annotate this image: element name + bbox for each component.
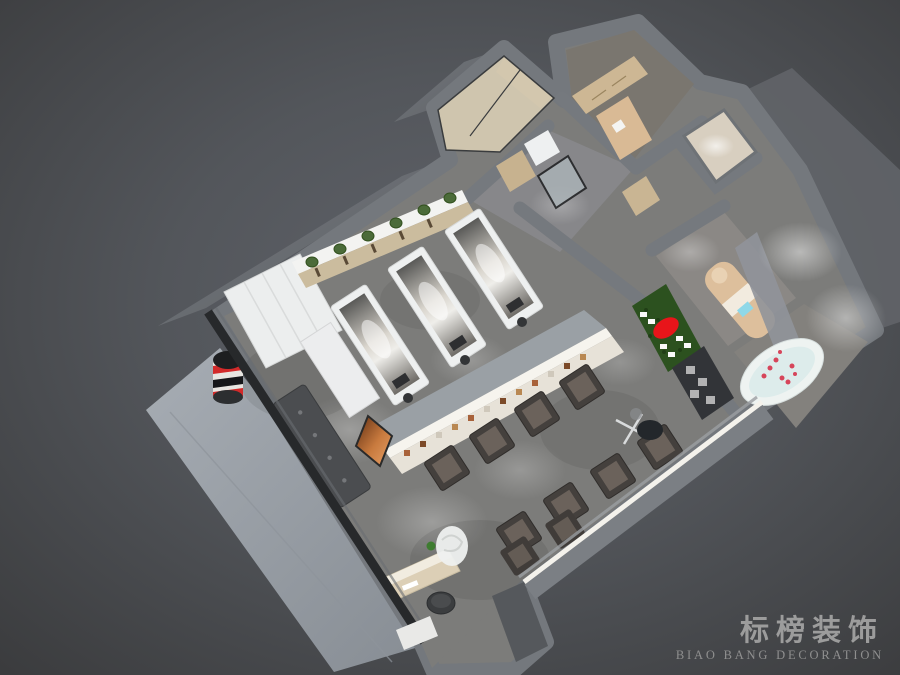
- render-canvas: 标榜装饰 BIAO BANG DECORATION: [0, 0, 900, 675]
- stool: [460, 355, 470, 365]
- desk-plant: [427, 542, 436, 551]
- stool: [517, 317, 527, 327]
- watermark-cn: 标榜装饰: [676, 616, 884, 645]
- salon-render: [0, 0, 900, 675]
- watermark: 标榜装饰 BIAO BANG DECORATION: [676, 616, 884, 663]
- stool: [403, 393, 413, 403]
- swirl-sculpture: [436, 526, 468, 566]
- watermark-en: BIAO BANG DECORATION: [676, 648, 884, 663]
